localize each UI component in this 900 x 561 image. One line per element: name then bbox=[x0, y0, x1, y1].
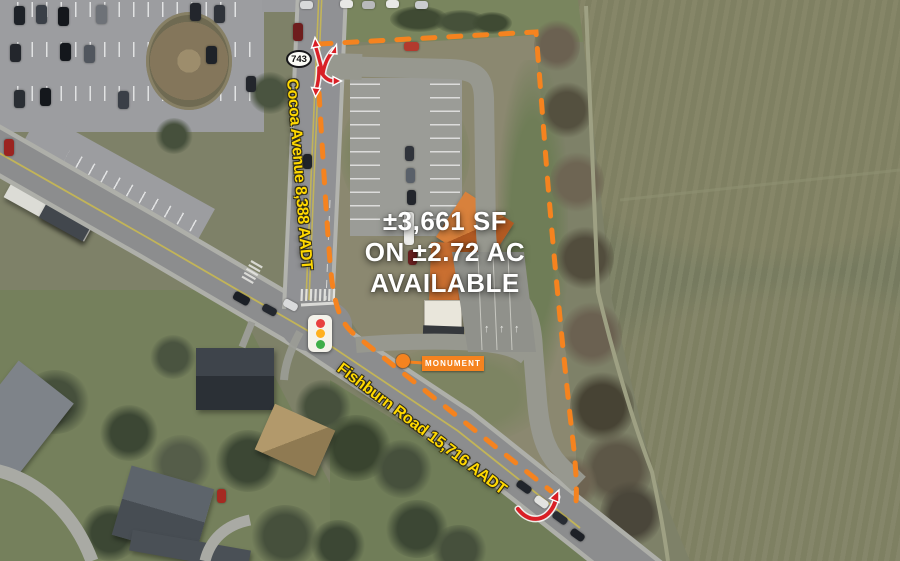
cocoa-avenue-label: Cocoa Avenue 8,388 AADT bbox=[282, 78, 315, 270]
availability-headline: ±3,661 SF ON ±2.72 AC AVAILABLE bbox=[314, 206, 576, 299]
monument-label: MONUMENT bbox=[422, 356, 484, 371]
green-lamp bbox=[316, 340, 325, 349]
traffic-light-icon bbox=[308, 315, 332, 352]
red-lamp bbox=[316, 319, 325, 328]
monument-marker bbox=[396, 354, 410, 368]
labels-layer: 743 Cocoa Avenue 8,388 AADT Fishburn Roa… bbox=[0, 0, 900, 561]
headline-acres: ON ±2.72 AC bbox=[314, 237, 576, 268]
aerial-site-map: ↑ ↑ ↑ bbox=[0, 0, 900, 561]
headline-sf: ±3,661 SF bbox=[314, 206, 576, 237]
amber-lamp bbox=[316, 329, 325, 338]
headline-available: AVAILABLE bbox=[314, 268, 576, 299]
route-743-shield: 743 bbox=[286, 50, 312, 68]
fishburn-road-label: Fishburn Road 15,716 AADT bbox=[333, 360, 509, 499]
route-number: 743 bbox=[291, 54, 307, 65]
